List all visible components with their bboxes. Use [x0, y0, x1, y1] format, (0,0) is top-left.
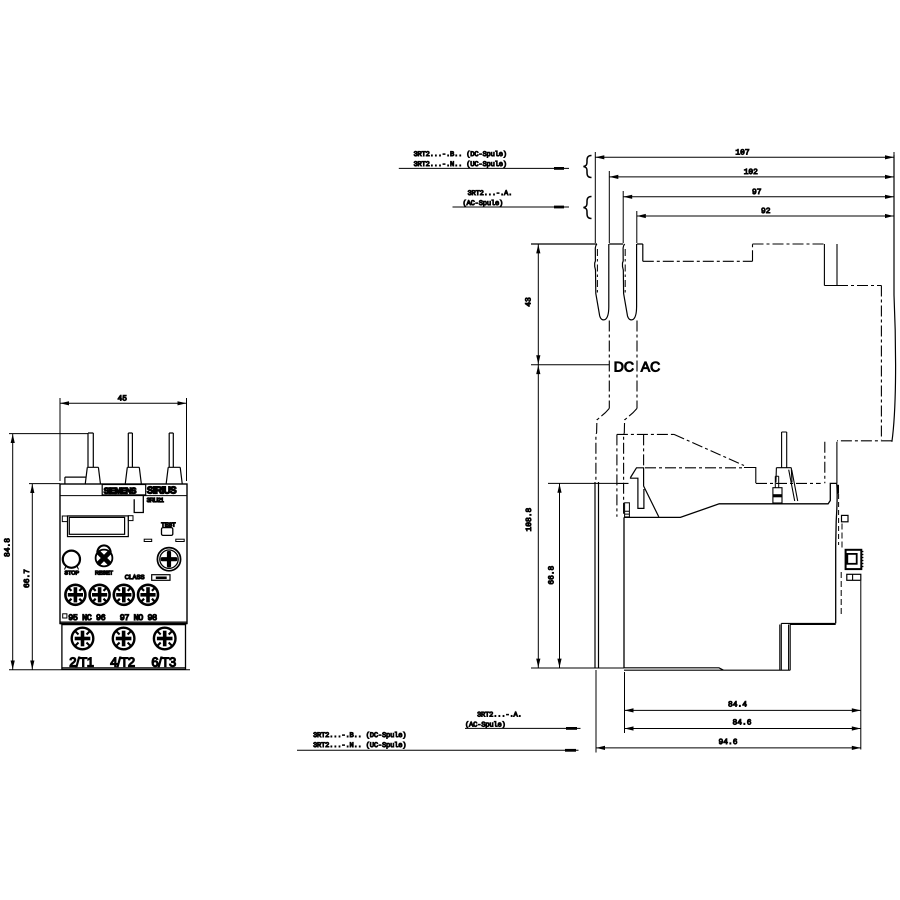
svg-text:DC: DC: [614, 359, 634, 375]
svg-text:6/T3: 6/T3: [151, 655, 176, 670]
svg-text:94.6: 94.6: [719, 738, 738, 747]
svg-text:45: 45: [118, 394, 128, 403]
svg-text:97: 97: [752, 188, 762, 197]
svg-text:RESET: RESET: [95, 570, 114, 576]
svg-text:84.6: 84.6: [733, 719, 752, 728]
svg-text:3RU21: 3RU21: [147, 497, 165, 504]
svg-text:95 NC 96: 95 NC 96: [68, 613, 105, 623]
svg-text:3RT2...-.A.: 3RT2...-.A.: [477, 712, 522, 720]
svg-text:66.7: 66.7: [23, 569, 32, 588]
svg-text:4/T2: 4/T2: [110, 655, 135, 670]
svg-text:97 NO 98: 97 NO 98: [120, 613, 157, 623]
svg-text:107: 107: [735, 148, 749, 157]
svg-text:CLASS: CLASS: [125, 574, 145, 581]
svg-text:3RT2...-.B.. (DC-Spule): 3RT2...-.B.. (DC-Spule): [313, 731, 406, 740]
svg-text:66.8: 66.8: [548, 565, 557, 584]
svg-text:84.8: 84.8: [3, 538, 12, 557]
svg-text:43: 43: [525, 297, 534, 307]
svg-text:108.8: 108.8: [525, 508, 534, 532]
svg-text:AC: AC: [641, 359, 660, 375]
svg-text:SIEMENS: SIEMENS: [104, 485, 137, 495]
svg-text:3RT2...-.N.. (UC-Spule): 3RT2...-.N.. (UC-Spule): [414, 160, 507, 169]
svg-text:3RT2...-.A.: 3RT2...-.A.: [468, 190, 513, 198]
svg-text:102: 102: [744, 168, 758, 177]
svg-text:92: 92: [761, 207, 771, 216]
svg-text:SIRIUS: SIRIUS: [147, 485, 177, 496]
svg-text:2/T1: 2/T1: [69, 655, 94, 670]
svg-text:(AC-Spule): (AC-Spule): [463, 199, 504, 208]
svg-text:3RT2...-.N.. (UC-Spule): 3RT2...-.N.. (UC-Spule): [313, 741, 406, 750]
svg-text:3RT2...-.B.. (DC-Spule): 3RT2...-.B.. (DC-Spule): [414, 150, 507, 159]
svg-text:STOP: STOP: [65, 570, 80, 576]
svg-text:84.4: 84.4: [728, 701, 747, 710]
